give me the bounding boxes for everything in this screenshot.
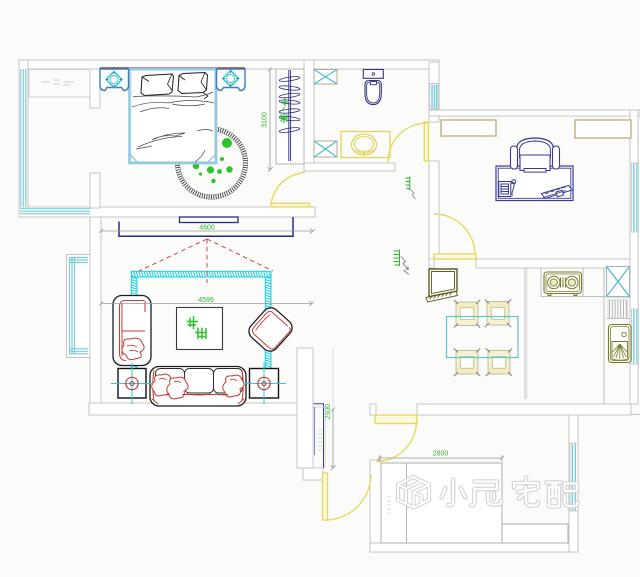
svg-text:4599: 4599: [198, 297, 214, 304]
svg-text:2800: 2800: [433, 451, 449, 458]
svg-text:4600: 4600: [199, 225, 215, 232]
svg-text:3100: 3100: [262, 112, 269, 128]
svg-text:2500: 2500: [325, 404, 332, 420]
